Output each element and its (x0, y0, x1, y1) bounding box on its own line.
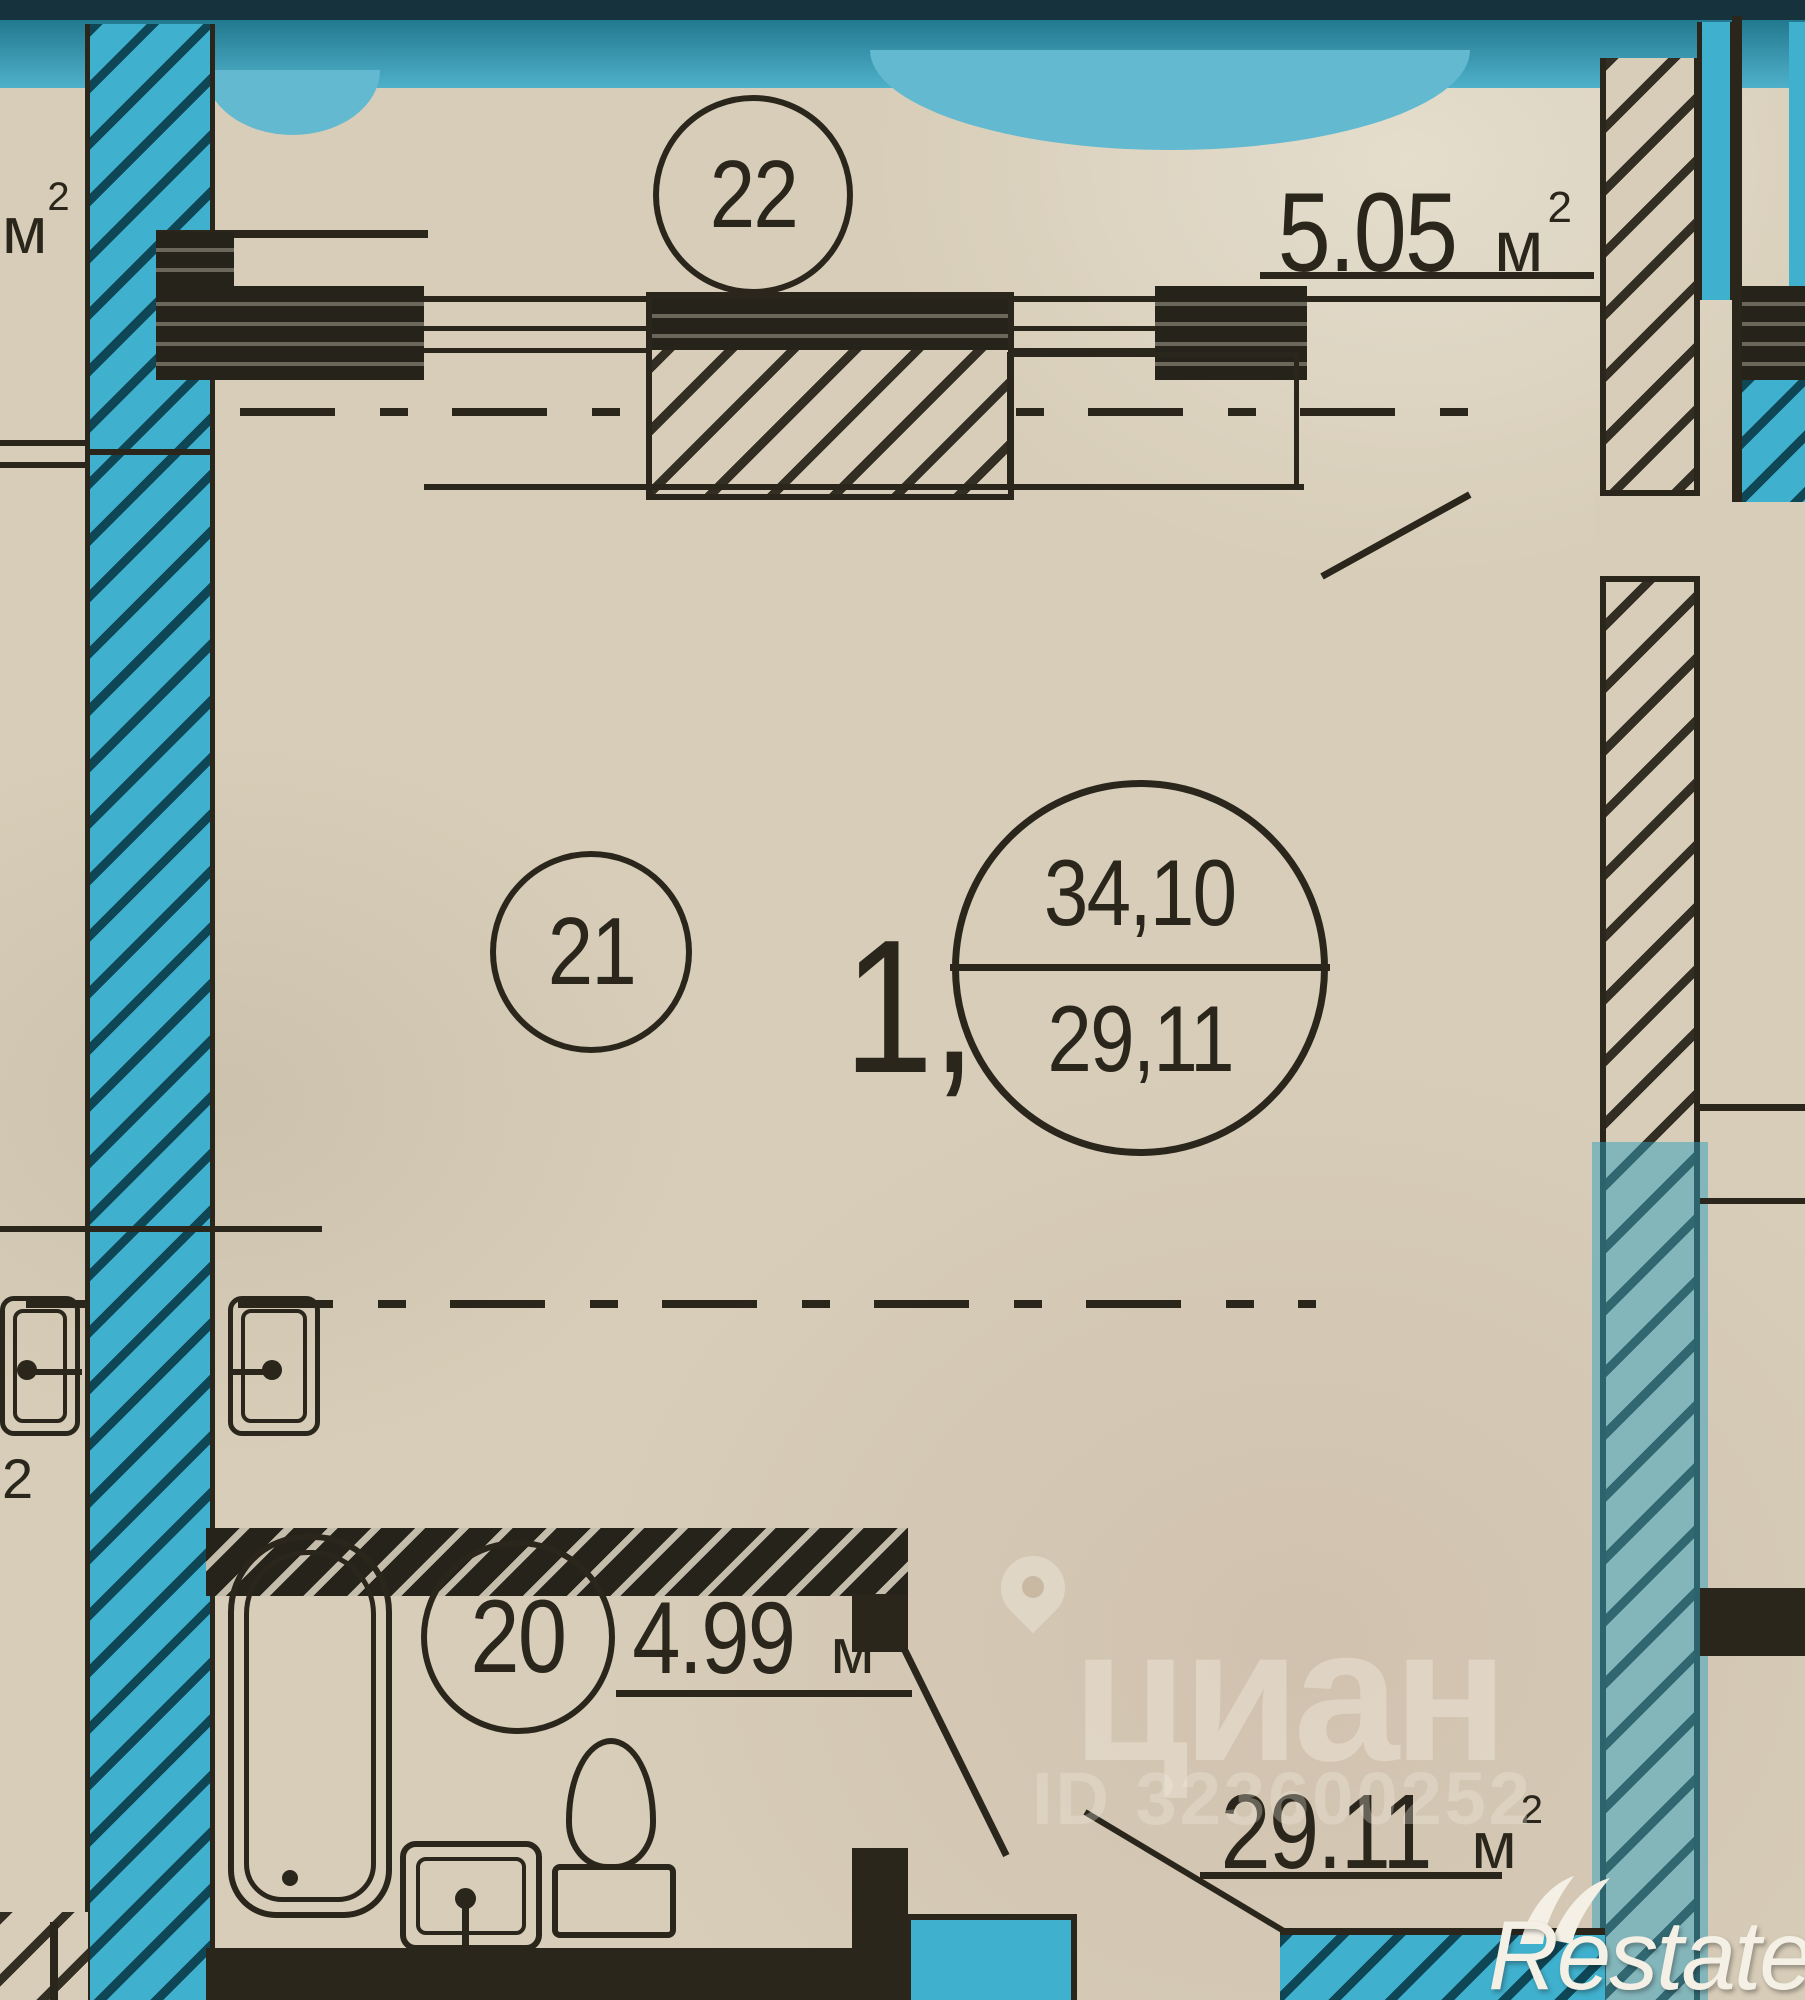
cian-pin-icon (1000, 1554, 1066, 1646)
window-glass-line-left-b (424, 348, 662, 353)
unit-living-area: 29,11 (959, 985, 1321, 1093)
neighbor-sink-tap-knob (17, 1360, 37, 1380)
unit-area-divider-line (950, 964, 1330, 971)
bottom-wall (206, 1948, 908, 2000)
neighbor-dark-band (1700, 1588, 1805, 1656)
balcony-door-swing (1320, 492, 1471, 580)
bottom-teal-corner-block (905, 1914, 1077, 2000)
window-glass-line-left-a (424, 326, 662, 331)
toilet-bowl (566, 1738, 656, 1870)
washbasin-tap (462, 1898, 469, 1986)
partial-top-left-unit: м2 (2, 192, 70, 268)
washbasin-tap-knob (455, 1888, 476, 1909)
bathroom-area-unit: м2 (831, 1614, 897, 1688)
bathtub (228, 1534, 392, 1918)
bottom-hatched-wall-band (1280, 1928, 1605, 2000)
right-wall-jamb-bottom (1600, 576, 1700, 582)
neighbor-sink-tap (34, 1369, 82, 1375)
bathroom-door-swing (901, 1647, 1010, 1857)
neighbor-wall-hatched (1742, 380, 1805, 502)
neighbor-window-block (1742, 286, 1805, 380)
hall-area-underline (1200, 1872, 1502, 1879)
right-wall-door-opening (1594, 494, 1706, 580)
bathroom-room-number: 20 (471, 1578, 566, 1697)
bottom-left-corner-hatch (0, 1912, 88, 2000)
window-pier-cap (652, 298, 1008, 350)
room-axis-dashed-line (238, 1300, 1316, 1308)
window-pier-hatched (646, 292, 1014, 500)
bathroom-area-underline (616, 1690, 912, 1697)
left-wall-break-line (85, 449, 215, 455)
neighbor-line-a (1700, 1104, 1805, 1111)
right-teal-strip (1697, 22, 1735, 300)
unit-total-area: 34,10 (959, 839, 1321, 947)
right-wall-jamb-top (1600, 490, 1700, 496)
room-circle-living: 21 (490, 851, 692, 1053)
room-circle-balcony: 22 (653, 95, 853, 295)
balcony-area-underline (1260, 272, 1594, 279)
living-room-number: 21 (547, 897, 634, 1007)
floor-plan-canvas: 22 5.05 м2 21 1, 34,10 29,11 20 4.99 м2 … (0, 0, 1805, 2000)
neighbor-line-b (1700, 1198, 1805, 1204)
unit-area-circle: 34,10 29,11 (952, 780, 1328, 1156)
cian-watermark: циан (1072, 1600, 1502, 1790)
bottom-left-corner-line (50, 1922, 58, 2000)
top-teal-dip-right (870, 50, 1470, 150)
bathroom-area-value: 4.99 (632, 1580, 794, 1697)
neighbor-window-line-1 (0, 440, 88, 446)
top-teal-dip-left (205, 70, 380, 135)
window-frame-block-left (156, 286, 424, 380)
bathtub-inner (244, 1550, 376, 1902)
neighbor-right-wall-line (1732, 16, 1742, 502)
toilet-tank (552, 1864, 676, 1938)
kitchen-sink-tap-knob (262, 1360, 282, 1380)
right-wall-teal-highlight (1592, 1142, 1708, 2000)
bathroom-area-label: 4.99 м2 (618, 1580, 897, 1697)
neighbor-sink (0, 1296, 80, 1436)
window-sill-line (424, 484, 1304, 490)
neighbor-partition-line (0, 1226, 322, 1232)
balcony-door-box (1007, 352, 1299, 490)
window-glass-line-right-a (1014, 326, 1159, 331)
room-circle-bathroom: 20 (421, 1540, 615, 1734)
bathtub-drain (282, 1870, 298, 1886)
partial-left-sup: 2 (2, 1446, 33, 1511)
balcony-room-number: 22 (709, 140, 796, 250)
parapet-left-cap (156, 232, 234, 292)
neighbor-window-line-2 (0, 462, 88, 468)
